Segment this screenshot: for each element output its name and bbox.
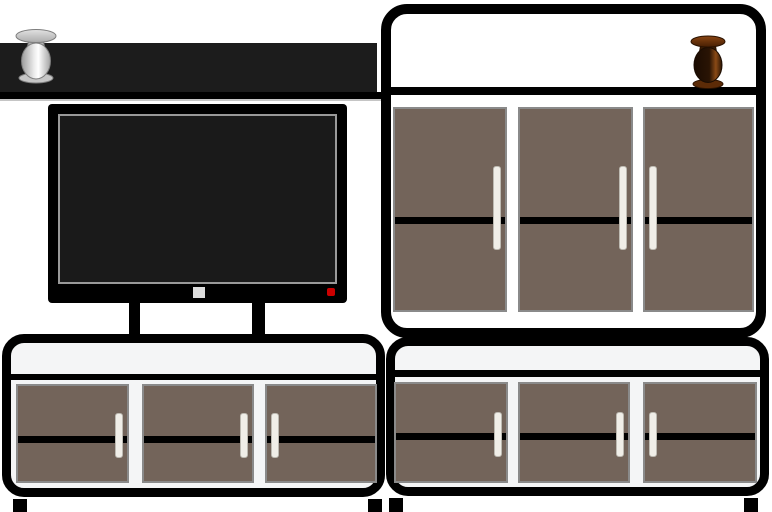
door-seam-line [395,217,505,224]
tv-screen [58,114,337,284]
door-seam-line [267,436,375,443]
door-handle [271,413,279,458]
right-sideboard-door-2 [518,382,630,483]
door-handle [649,166,657,250]
right-sideboard-door-1 [394,382,508,483]
left-sideboard-door-2 [142,384,254,483]
tv-leg-left [129,303,140,337]
door-seam-line [144,436,252,443]
tall-cabinet-door-3 [643,107,754,312]
door-seam-line [396,433,506,440]
left-sideboard-top-divider [6,374,381,380]
door-handle [240,413,248,458]
door-handle [616,412,624,457]
left-sideboard-foot-right [368,499,382,512]
left-sideboard-foot-left [13,499,27,512]
tv-standby-led [327,288,335,296]
right-sideboard-top-divider [390,370,765,377]
tv-power-button [193,287,205,298]
door-seam-line [645,217,752,224]
door-seam-line [520,433,628,440]
silver-vase [14,28,58,84]
door-seam-line [18,436,127,443]
right-sideboard-foot-right [744,498,758,512]
left-sideboard-door-3 [265,384,377,483]
door-seam-line [645,433,755,440]
left-sideboard-door-1 [16,384,129,483]
door-seam-line [520,217,631,224]
right-sideboard-foot-left [389,498,403,512]
brown-vase [687,35,729,89]
tall-cabinet-door-1 [393,107,507,312]
wall-shelf-lip [0,92,381,99]
tall-cabinet-door-2 [518,107,633,312]
right-sideboard-door-3 [643,382,757,483]
door-handle [619,166,627,250]
door-handle [649,412,657,457]
furniture-illustration [0,0,772,512]
door-handle [115,413,123,458]
tv-leg-right [252,303,265,337]
door-handle [494,412,502,457]
door-handle [493,166,501,250]
